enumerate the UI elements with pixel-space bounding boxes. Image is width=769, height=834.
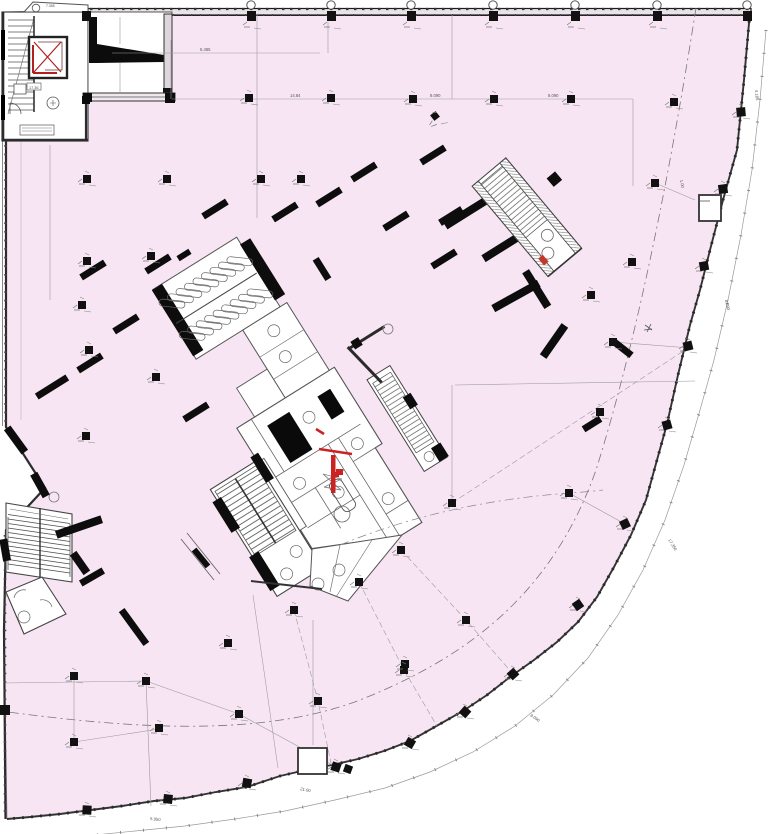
svg-text:4.185: 4.185	[754, 90, 760, 102]
svg-text:8.090: 8.090	[430, 93, 441, 98]
svg-text:5.485: 5.485	[200, 47, 211, 52]
svg-text:14.84: 14.84	[290, 93, 301, 98]
svg-text:17.36: 17.36	[29, 86, 39, 90]
svg-text:8.090: 8.090	[548, 93, 559, 98]
svg-text:7.365: 7.365	[46, 4, 55, 8]
